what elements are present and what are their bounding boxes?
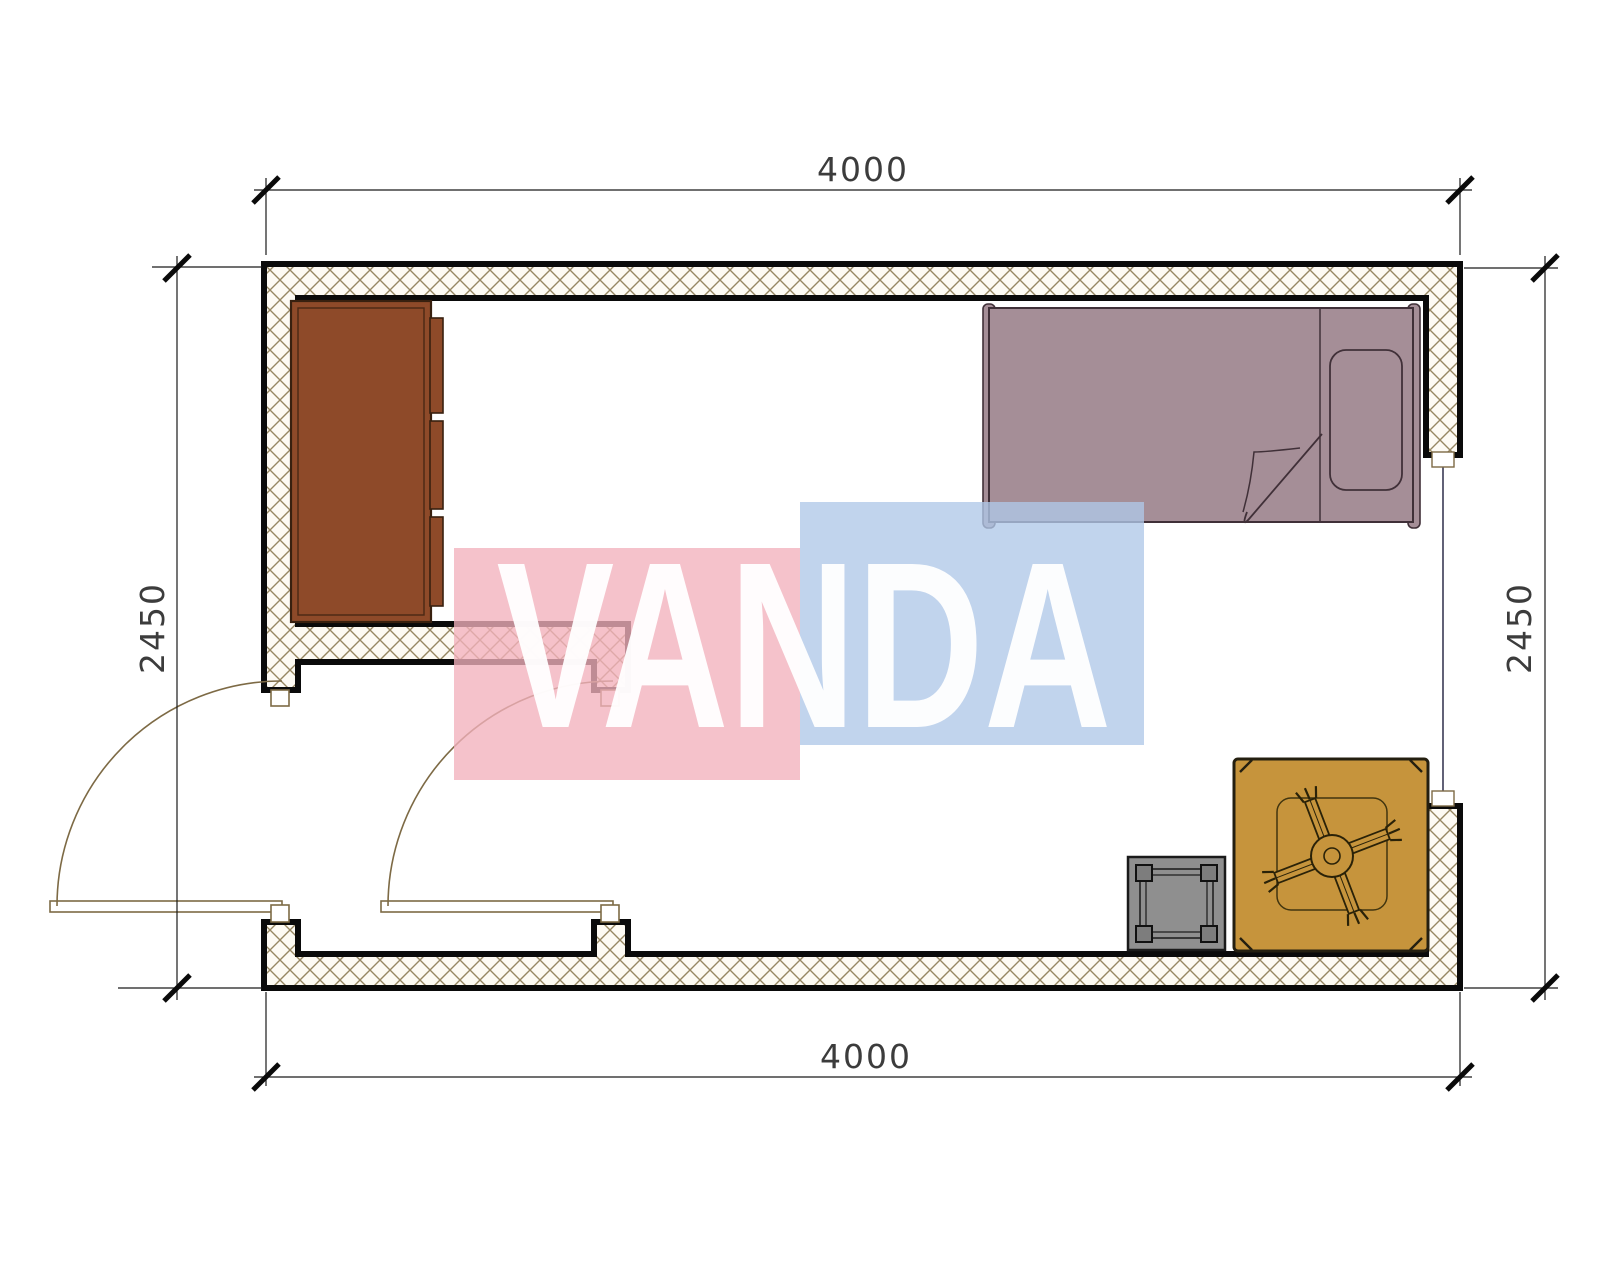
door-left-jamb-top [271,690,289,706]
wardrobe [291,301,443,622]
single-bed [983,304,1420,528]
bed-pillow [1330,350,1402,490]
window-jamb-bottom [1432,791,1454,806]
door-middle-leaf [381,901,613,912]
door-left-leaf [50,901,282,912]
wardrobe-door-panel [430,318,443,413]
dim-text-bottom: 4000 [820,1037,912,1076]
stool-leg [1201,926,1217,942]
wardrobe-body [291,301,431,622]
low-table [1234,759,1428,951]
stool-leg [1136,926,1152,942]
door-middle-jamb-bottom [601,905,619,922]
floor-plan-page: 4000 4000 2450 2450 VANDA [0,0,1600,1280]
fan-hub [1311,835,1353,877]
stool-leg [1136,865,1152,881]
wardrobe-door-panel [430,421,443,509]
window-right [1432,452,1454,806]
stool [1128,857,1225,950]
door-left-swing-arc [57,681,282,906]
dim-text-right: 2450 [1500,582,1539,674]
stool-leg [1201,865,1217,881]
window-jamb-top [1432,452,1454,467]
dim-text-top: 4000 [817,150,909,189]
watermark-text: VANDA [497,513,1112,778]
door-left-jamb-bottom [271,905,289,922]
floor-plan-canvas: 4000 4000 2450 2450 VANDA [0,0,1600,1280]
dim-text-left: 2450 [133,582,172,674]
wardrobe-door-panel [430,517,443,606]
watermark: VANDA [454,502,1144,780]
